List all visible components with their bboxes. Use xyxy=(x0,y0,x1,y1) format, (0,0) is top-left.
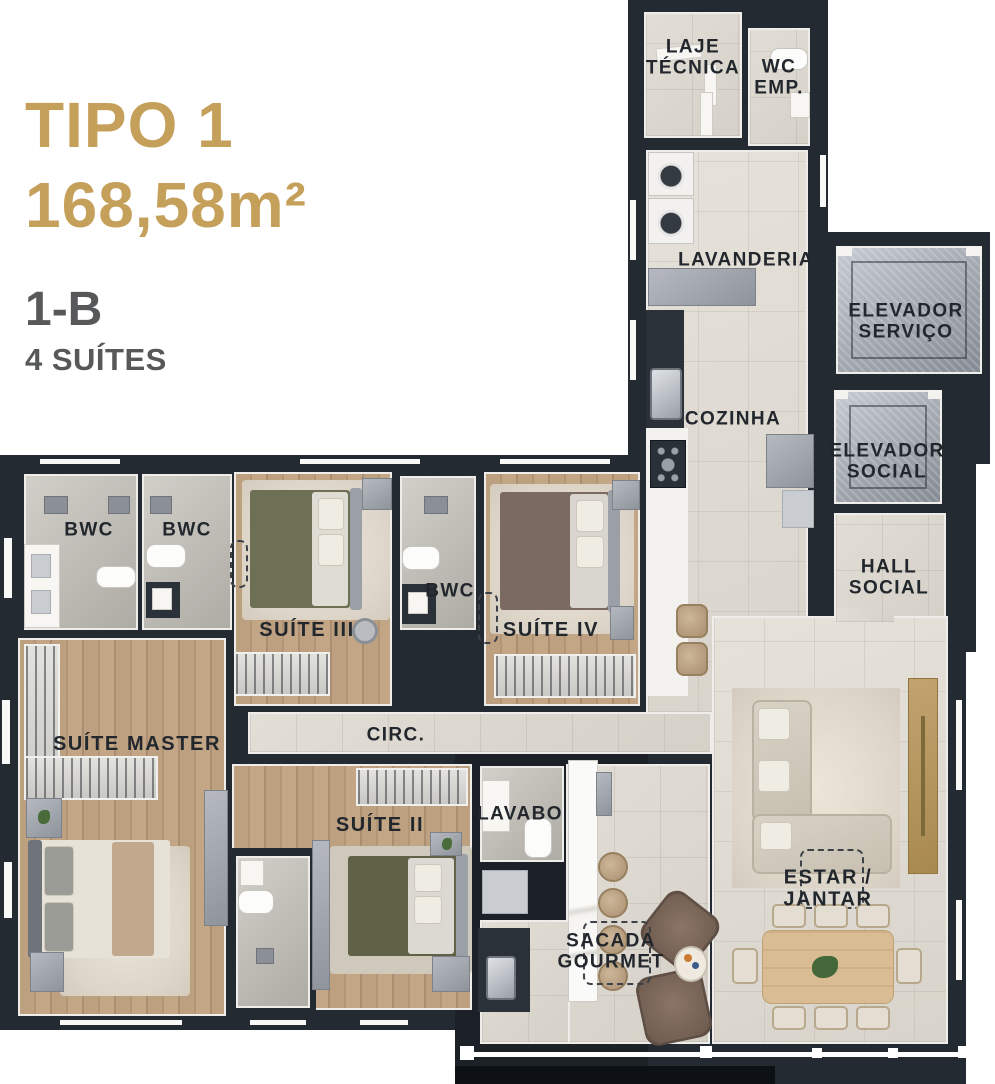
window-marker xyxy=(820,155,826,207)
cooktop-icon xyxy=(650,440,686,488)
plan-area-title: 168,58m² xyxy=(25,168,307,242)
room-label-suite4: SUÍTE IV xyxy=(503,619,599,641)
room-label-suite-master: SUÍTE MASTER xyxy=(53,733,221,755)
room-label-bwc3: BWC xyxy=(425,580,475,601)
gourmet-sink-icon xyxy=(486,956,516,1000)
dresser-icon xyxy=(432,956,470,992)
door-gap-hall xyxy=(836,608,894,622)
pillow xyxy=(318,534,344,566)
kitchen-sink-icon xyxy=(650,368,682,420)
dining-chair-icon xyxy=(896,948,922,984)
toilet-icon xyxy=(238,890,274,914)
elevator-corner-notch xyxy=(834,390,848,399)
sideboard-handle xyxy=(921,716,925,836)
wardrobe-tall-icon xyxy=(312,840,330,990)
room-label-suite3: SUÍTE III xyxy=(259,619,355,641)
bench-icon xyxy=(610,606,634,640)
room-label-wc-emp: WC EMP. xyxy=(754,57,804,100)
stool-icon xyxy=(598,888,628,918)
room-label-estar-jantar: ESTAR / JANTAR xyxy=(745,867,912,912)
shower-head-icon xyxy=(424,496,448,514)
balcony-shadow-strip xyxy=(455,1066,775,1084)
balcony-post xyxy=(812,1048,822,1058)
pillow xyxy=(576,500,604,532)
fridge-icon xyxy=(766,434,814,488)
side-table-icon xyxy=(674,946,708,982)
window-marker xyxy=(500,459,610,464)
dining-chair-icon xyxy=(814,1006,848,1030)
window-marker xyxy=(60,1020,182,1025)
pillow xyxy=(758,760,790,792)
dining-chair-icon xyxy=(772,1006,806,1030)
window-marker xyxy=(4,862,12,918)
wardrobe-icon xyxy=(356,768,468,806)
door-marker xyxy=(230,540,248,588)
wardrobe-icon xyxy=(494,654,636,698)
window-marker xyxy=(360,1020,408,1025)
window-marker xyxy=(2,700,10,764)
pillow xyxy=(414,864,442,892)
plant-icon xyxy=(442,838,452,850)
window-marker xyxy=(4,538,12,598)
shower-head-icon xyxy=(256,948,274,964)
room-label-circulacao: CIRC. xyxy=(367,724,426,745)
sink-icon xyxy=(152,588,172,610)
washer-icon xyxy=(648,152,694,196)
bed-headboard xyxy=(28,840,42,958)
plan-type-title: TIPO 1 xyxy=(25,88,234,162)
room-label-sacada: SACADA GOURMET xyxy=(558,931,665,974)
bench-icon xyxy=(30,952,64,992)
shower-head-icon xyxy=(44,496,68,514)
sink-icon xyxy=(240,860,264,886)
sink-icon xyxy=(31,590,51,614)
window-marker xyxy=(40,459,120,464)
pillow xyxy=(576,536,604,568)
room-label-lavanderia: LAVANDERIA xyxy=(678,249,814,270)
pillow xyxy=(760,822,792,850)
nightstand-icon xyxy=(612,480,640,510)
balcony-post xyxy=(460,1046,474,1060)
room-label-cozinha: COZINHA xyxy=(685,408,781,429)
pillow xyxy=(44,846,74,896)
dining-chair-icon xyxy=(856,1006,890,1030)
window-marker xyxy=(630,200,636,260)
window-marker xyxy=(630,320,636,380)
pillow xyxy=(318,498,344,530)
bar-appliance-icon xyxy=(596,772,612,816)
mirror-icon xyxy=(352,618,378,644)
wardrobe-tall-icon xyxy=(204,790,228,926)
shower-head-icon xyxy=(150,496,172,514)
elevator-corner-notch xyxy=(928,390,942,399)
decor-icon xyxy=(692,962,699,969)
room-label-elevador-social: ELEVADOR SOCIAL xyxy=(829,441,944,484)
room-floor-circulacao xyxy=(248,712,712,754)
plant-icon xyxy=(38,810,50,824)
laje-equipment-icon xyxy=(700,92,713,136)
room-label-suite2: SUÍTE II xyxy=(336,814,424,836)
balcony-post xyxy=(958,1046,970,1058)
elevator-corner-notch xyxy=(966,246,982,256)
window-marker xyxy=(300,459,420,464)
washer-icon xyxy=(648,198,694,244)
balcony-post xyxy=(888,1048,898,1058)
window-marker xyxy=(956,700,962,790)
floorplan-canvas: TIPO 1 168,58m² 1-B 4 SUÍTES xyxy=(0,0,995,1084)
balcony-post xyxy=(700,1046,712,1058)
bed-throw xyxy=(112,842,154,956)
bed-headboard xyxy=(350,488,362,610)
room-label-elevador-servico: ELEVADOR SERVIÇO xyxy=(848,301,963,344)
bed-headboard xyxy=(456,854,468,958)
shaft-box xyxy=(482,870,528,914)
window-marker xyxy=(956,900,962,980)
pillow xyxy=(44,902,74,952)
nightstand-icon xyxy=(362,478,392,510)
room-label-laje-tecnica: LAJE TÉCNICA xyxy=(646,37,740,80)
room-label-bwc2: BWC xyxy=(162,519,212,540)
pillow xyxy=(414,896,442,924)
stool-icon xyxy=(598,852,628,882)
pillow xyxy=(758,708,790,740)
stool-icon xyxy=(676,642,708,676)
sink-icon xyxy=(31,554,51,578)
decor-icon xyxy=(684,954,692,962)
wardrobe-icon xyxy=(24,756,158,800)
room-label-hall-social: HALL SOCIAL xyxy=(849,557,929,600)
stool-icon xyxy=(676,604,708,638)
room-label-bwc1: BWC xyxy=(64,519,114,540)
room-label-lavabo: LAVABO xyxy=(477,803,563,824)
toilet-icon xyxy=(146,544,186,568)
kitchen-cabinet-icon xyxy=(782,490,814,528)
laundry-counter-icon xyxy=(648,268,756,306)
elevator-corner-notch xyxy=(836,246,852,256)
plan-subtitle: 4 SUÍTES xyxy=(25,342,167,378)
dining-chair-icon xyxy=(732,948,758,984)
toilet-icon xyxy=(402,546,440,570)
window-marker xyxy=(250,1020,306,1025)
shower-head-icon xyxy=(108,496,130,514)
wardrobe-icon xyxy=(234,652,330,696)
door-marker xyxy=(478,592,498,644)
toilet-icon xyxy=(96,566,136,588)
plan-variant: 1-B xyxy=(25,282,102,337)
